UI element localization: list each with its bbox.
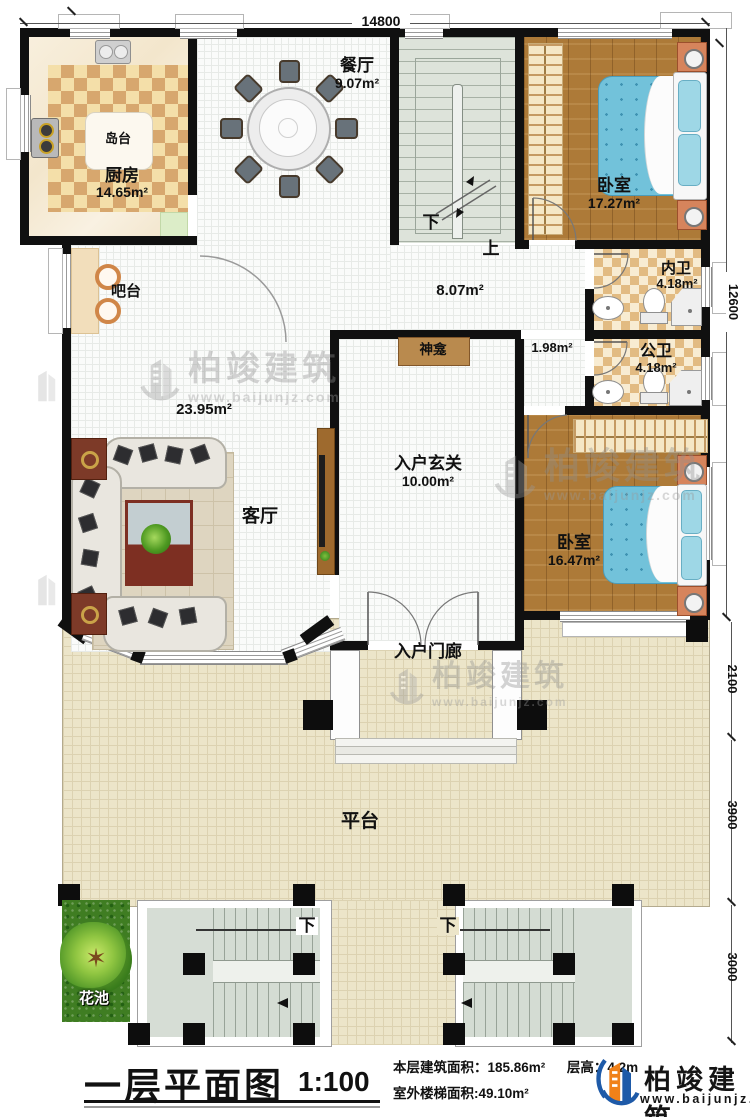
watermark-logo-icon <box>28 356 62 416</box>
foyer-floor <box>339 339 515 641</box>
stair-center-rail <box>452 84 463 239</box>
living-label: 客厅 <box>232 507 288 526</box>
bedroom2-pillow-2 <box>681 536 702 580</box>
sill-bedroom1-top <box>660 12 732 29</box>
watermark-logo-icon <box>28 560 62 620</box>
column <box>443 884 465 906</box>
bedroom2-area: 16.47m² <box>536 553 612 568</box>
bedroom1-pillow-1 <box>678 80 701 132</box>
bedroom1-pillow-2 <box>678 134 701 186</box>
column <box>443 953 465 975</box>
outdoor-stair-right-down: 下 <box>437 917 459 935</box>
kitchen-door-mat <box>160 212 188 237</box>
wall-bed2-bottom-a <box>515 611 560 620</box>
wall-top-2 <box>110 28 180 37</box>
column <box>293 1023 315 1045</box>
porch-column-left <box>303 700 333 730</box>
flowerbed-label: 花池 <box>66 991 122 1007</box>
lamp-icon <box>684 593 704 613</box>
bedroom1-nightstand-2 <box>677 200 707 230</box>
brand-url: www.baijunjz.com <box>640 1092 750 1106</box>
corridor-area: 1.98m² <box>524 341 580 355</box>
bedroom2-label: 卧室 <box>544 534 604 552</box>
porch-floor <box>358 650 492 738</box>
innerbath-area: 4.18m² <box>648 277 706 291</box>
corner-table-1 <box>71 438 107 480</box>
leader-line-right <box>460 929 550 931</box>
sofa-pillow <box>165 446 184 465</box>
tv-icon <box>319 455 325 547</box>
brand-name: 柏竣建筑 <box>644 1058 750 1117</box>
cabinet-plant-icon <box>320 551 330 561</box>
dining-table-center <box>278 118 298 138</box>
leader-line-left <box>196 929 296 931</box>
window-bedroom2-bottom <box>560 611 690 622</box>
column <box>183 1023 205 1045</box>
porch-column-right <box>517 700 547 730</box>
window-publicbath-right <box>701 357 712 400</box>
innerbath-sink <box>592 296 624 320</box>
stat-outdoor-stairs-value: 49.10m² <box>479 1086 529 1101</box>
sill-dining-top <box>175 14 244 29</box>
porch-step-3 <box>335 754 517 764</box>
dim-right-stairs: 3000 <box>725 938 739 996</box>
wall-bed2-top-a <box>515 406 524 415</box>
bedroom2-blanket <box>646 486 678 582</box>
dining-chair-1 <box>335 118 358 139</box>
wall-left-living-a <box>62 245 71 254</box>
bedroom1-nightstand-1 <box>677 42 707 72</box>
innerbath-toilet-tank <box>640 312 668 324</box>
column <box>612 884 634 906</box>
dim-top: 14800 <box>352 14 410 28</box>
foyer-label: 入户玄关 <box>388 455 468 473</box>
column <box>612 1023 634 1045</box>
island-label: 岛台 <box>97 132 139 146</box>
bedroom2-pillow-1 <box>681 490 702 534</box>
living-area: 23.95m² <box>168 402 240 418</box>
lamp-icon <box>684 207 704 227</box>
foyer-area: 10.00m² <box>394 474 462 489</box>
drain-dot <box>606 390 610 394</box>
innerbath-label: 内卫 <box>650 261 702 277</box>
publicbath-area: 4.18m² <box>626 361 686 375</box>
wall-bed1-bottom-b <box>575 240 710 249</box>
stat-outdoor-stairs: 室外楼梯面积:49.10m² <box>393 1082 529 1102</box>
dim-right-total: 12600 <box>726 272 740 332</box>
wall-kitchen-bottom <box>20 236 197 245</box>
dim-line-top-b <box>410 23 710 24</box>
publicbath-sink <box>592 380 624 404</box>
hallway-area: 8.07m² <box>428 283 492 299</box>
column <box>293 884 315 906</box>
dining-label: 餐厅 <box>322 57 392 75</box>
decor-ring <box>81 606 99 624</box>
brand-logo-icon <box>596 1056 640 1108</box>
sill-innerbath-right <box>712 262 727 314</box>
bedroom2-nightstand-1 <box>677 455 707 485</box>
bay-window-bottom <box>140 651 288 665</box>
lamp-icon <box>684 462 704 482</box>
window-kitchen-left <box>20 95 31 152</box>
bar-counter <box>71 248 99 334</box>
column <box>553 1023 575 1045</box>
dining-chair-5 <box>220 118 243 139</box>
bedroom1-area: 17.27m² <box>578 196 650 211</box>
drain-dot <box>688 309 692 313</box>
outdoor-stair-left-down: 下 <box>296 917 318 935</box>
platform-between-stairs <box>311 900 455 1045</box>
stair-down-label: 下 <box>420 214 442 232</box>
bar-stool-2 <box>95 298 121 324</box>
sill-bedroom2-bottom <box>562 622 690 637</box>
stat-floor-area-value: 185.86m² <box>488 1060 546 1075</box>
column <box>553 953 575 975</box>
shrine-label: 神龛 <box>406 343 460 357</box>
sill-bedroom2-right <box>712 462 727 566</box>
title-underline-thin <box>84 1106 380 1108</box>
bedroom2-wardrobe <box>573 419 708 453</box>
floor-plan-page: 平台 下 上 <box>0 0 750 1117</box>
column <box>128 1023 150 1045</box>
wall-top-3 <box>237 28 405 37</box>
column <box>183 953 205 975</box>
wall-bath-mid <box>585 330 710 339</box>
column <box>686 620 708 642</box>
wall-left-kitchen-a <box>20 28 29 95</box>
stat-floor-area-label: 本层建筑面积： <box>393 1060 488 1075</box>
window-kitchen-top <box>70 28 110 39</box>
watermark-fragment <box>28 356 62 416</box>
dining-area: 9.07m² <box>322 76 392 91</box>
sill-publicbath-right <box>712 352 727 406</box>
corner-table-2 <box>71 593 107 635</box>
plan-scale: 1:100 <box>298 1066 370 1098</box>
sill-kitchen-left <box>6 88 21 160</box>
porch-pillar-left <box>330 650 360 740</box>
wall-bed1-bottom-a <box>515 240 529 249</box>
tree-trunk-icon: ✶ <box>82 944 110 972</box>
kitchen-label: 厨房 <box>82 167 162 185</box>
wall-stair-right <box>515 37 524 249</box>
burner-2 <box>39 139 54 154</box>
window-dining-top <box>180 28 237 39</box>
wall-foyer-right <box>515 339 524 611</box>
wall-kitchen-right <box>188 37 197 195</box>
dim-right-platform: 3900 <box>725 786 739 844</box>
plant-icon <box>141 524 171 554</box>
wall-left-living-b <box>62 328 71 628</box>
drain-dot <box>606 306 610 310</box>
drain-dot <box>687 390 691 394</box>
wall-bed2-top-b <box>565 406 710 415</box>
dining-table <box>247 87 331 171</box>
dining-chair-7 <box>279 60 300 83</box>
dim-tick <box>715 38 724 47</box>
stair-up-label: 上 <box>480 240 502 258</box>
bar-label: 吧台 <box>100 284 152 300</box>
porch-label: 入户门廊 <box>386 643 470 661</box>
sofa-pillow <box>179 607 198 626</box>
sill-kitchen-top <box>58 14 120 29</box>
wall-foyer-bottom-b <box>478 641 520 650</box>
column <box>293 953 315 975</box>
sofa-pillow <box>81 549 100 568</box>
dim-line-top-a <box>20 23 352 24</box>
window-stair-top <box>405 28 443 39</box>
sink-basin-left <box>99 45 113 59</box>
publicbath-toilet-tank <box>640 392 668 404</box>
window-bedroom1-top <box>558 28 672 39</box>
dining-chair-3 <box>279 175 300 198</box>
kitchen-sink <box>95 40 131 64</box>
decor-ring <box>81 451 99 469</box>
burner-1 <box>39 123 54 138</box>
wall-left-kitchen-b <box>20 152 29 245</box>
wall-top-4 <box>443 28 558 37</box>
sink-basin-right <box>114 45 128 59</box>
lamp-icon <box>684 49 704 69</box>
publicbath-label: 公卫 <box>628 344 684 361</box>
column <box>443 1023 465 1045</box>
stat-outdoor-stairs-label: 室外楼梯面积: <box>393 1086 479 1101</box>
bedroom2-nightstand-2 <box>677 586 707 616</box>
bedroom1-label: 卧室 <box>584 177 644 195</box>
sill-bar-left <box>48 248 63 334</box>
dim-tick <box>19 17 28 26</box>
outdoor-stair-right-landing <box>575 908 632 1037</box>
watermark-fragment <box>28 560 62 620</box>
title-underline-thick <box>84 1100 380 1103</box>
kitchen-area: 14.65m² <box>80 185 164 200</box>
stove-icon <box>31 118 59 158</box>
dim-right-porch: 2100 <box>725 650 739 708</box>
bedroom1-wardrobe <box>528 43 563 235</box>
platform-label: 平台 <box>336 812 384 832</box>
